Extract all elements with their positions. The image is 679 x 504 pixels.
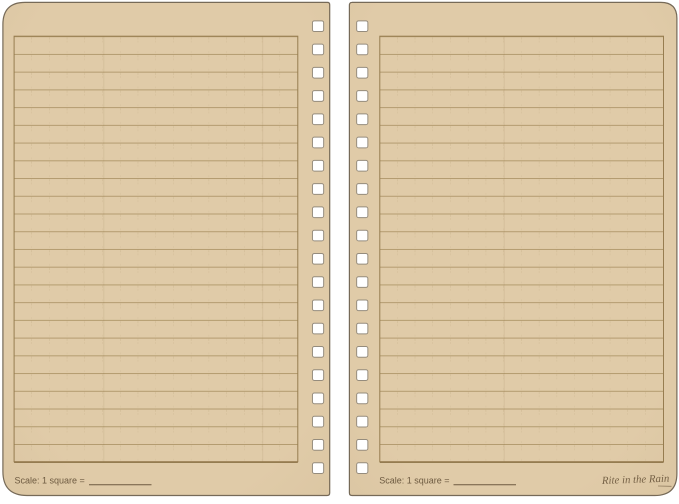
svg-text:Scale: 1 square =: Scale: 1 square =: [379, 476, 449, 486]
svg-text:Scale: 1 square =: Scale: 1 square =: [15, 476, 85, 486]
svg-text:Rite in the Rain: Rite in the Rain: [601, 473, 670, 487]
